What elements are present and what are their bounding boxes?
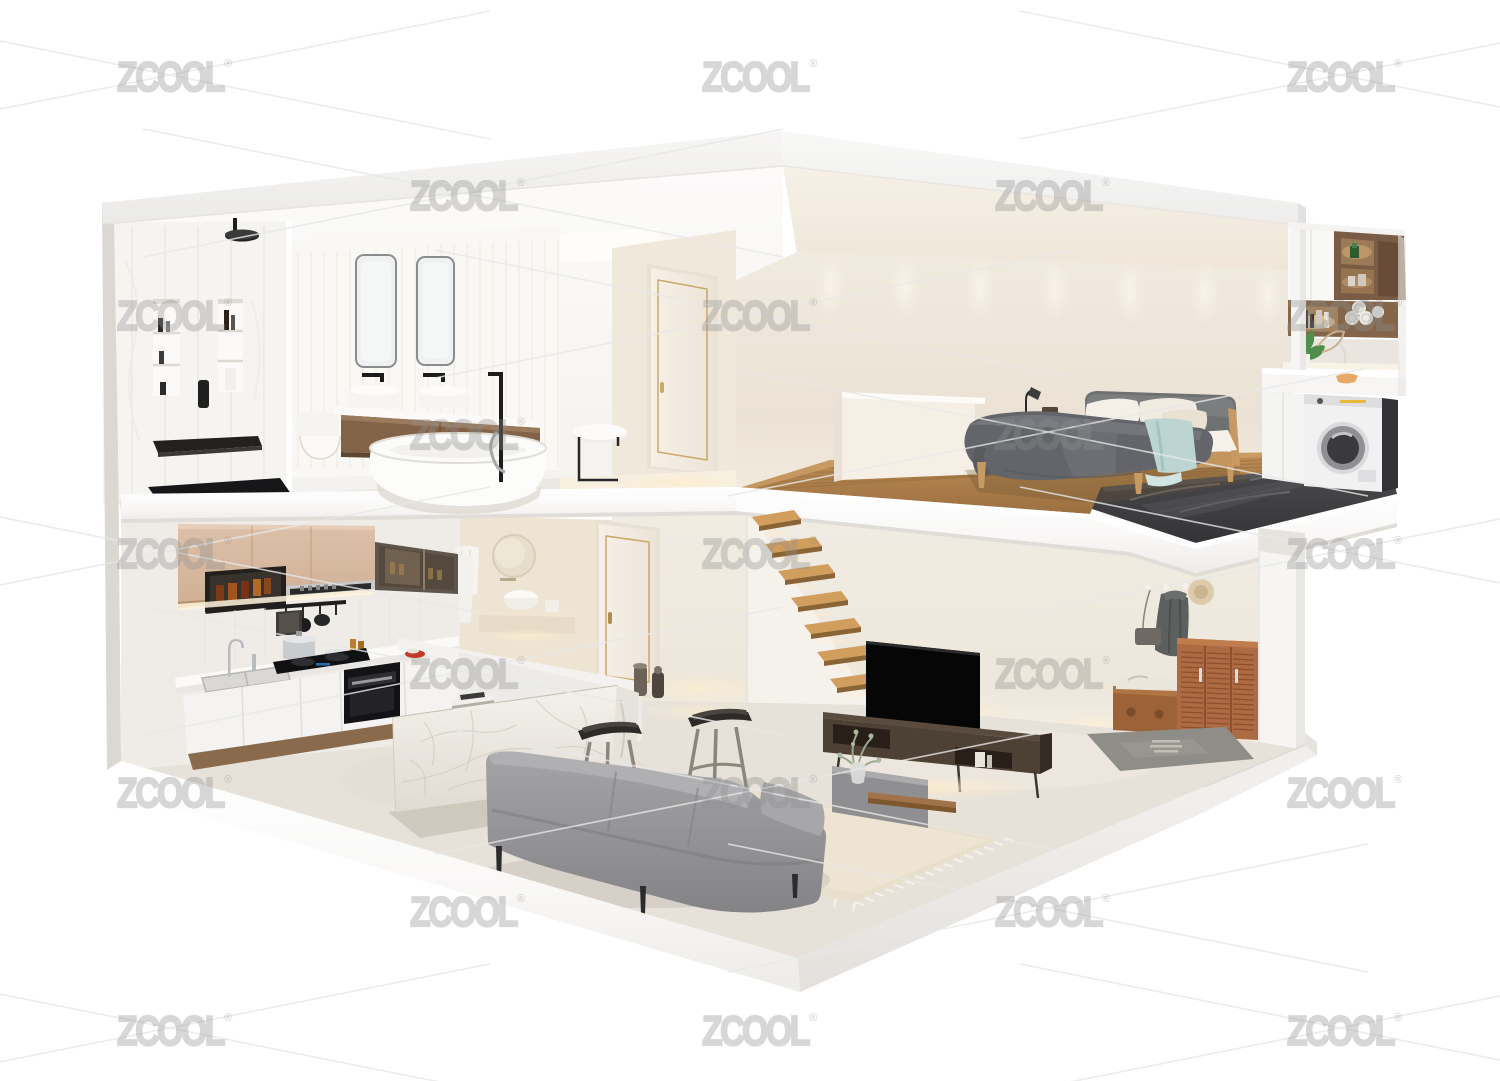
svg-text:®: ®: [1394, 297, 1402, 309]
svg-text:®: ®: [1394, 1012, 1402, 1024]
svg-text:®: ®: [1102, 416, 1110, 428]
svg-text:ZCOOL: ZCOOL: [410, 411, 518, 458]
svg-text:ZCOOL: ZCOOL: [995, 888, 1103, 935]
svg-text:ZCOOL: ZCOOL: [410, 650, 518, 697]
svg-text:®: ®: [224, 58, 232, 70]
svg-text:®: ®: [1102, 177, 1110, 189]
svg-text:ZCOOL: ZCOOL: [995, 411, 1103, 458]
svg-text:®: ®: [1102, 655, 1110, 667]
svg-text:ZCOOL: ZCOOL: [702, 53, 810, 100]
svg-text:ZCOOL: ZCOOL: [117, 53, 225, 100]
svg-text:ZCOOL: ZCOOL: [410, 172, 518, 219]
svg-text:®: ®: [517, 893, 525, 905]
svg-text:®: ®: [809, 774, 817, 786]
svg-text:ZCOOL: ZCOOL: [1287, 769, 1395, 816]
svg-text:®: ®: [224, 1012, 232, 1024]
svg-text:®: ®: [1102, 893, 1110, 905]
svg-text:ZCOOL: ZCOOL: [995, 650, 1103, 697]
svg-text:®: ®: [224, 535, 232, 547]
svg-text:®: ®: [517, 177, 525, 189]
svg-text:ZCOOL: ZCOOL: [995, 172, 1103, 219]
svg-text:ZCOOL: ZCOOL: [702, 530, 810, 577]
svg-text:ZCOOL: ZCOOL: [117, 292, 225, 339]
svg-text:ZCOOL: ZCOOL: [410, 888, 518, 935]
svg-text:®: ®: [809, 535, 817, 547]
svg-text:®: ®: [224, 774, 232, 786]
svg-text:®: ®: [809, 58, 817, 70]
svg-text:®: ®: [809, 1012, 817, 1024]
svg-text:ZCOOL: ZCOOL: [117, 1007, 225, 1054]
svg-text:®: ®: [809, 297, 817, 309]
svg-text:ZCOOL: ZCOOL: [702, 769, 810, 816]
svg-text:®: ®: [1394, 535, 1402, 547]
svg-text:ZCOOL: ZCOOL: [1287, 1007, 1395, 1054]
svg-text:ZCOOL: ZCOOL: [1287, 53, 1395, 100]
svg-text:ZCOOL: ZCOOL: [117, 530, 225, 577]
svg-text:®: ®: [224, 297, 232, 309]
svg-text:®: ®: [1394, 774, 1402, 786]
svg-text:®: ®: [517, 416, 525, 428]
svg-text:ZCOOL: ZCOOL: [1287, 530, 1395, 577]
svg-text:ZCOOL: ZCOOL: [702, 292, 810, 339]
svg-text:ZCOOL: ZCOOL: [117, 769, 225, 816]
svg-text:ZCOOL: ZCOOL: [702, 1007, 810, 1054]
svg-text:ZCOOL: ZCOOL: [1287, 292, 1395, 339]
svg-text:®: ®: [1394, 58, 1402, 70]
svg-text:®: ®: [517, 655, 525, 667]
